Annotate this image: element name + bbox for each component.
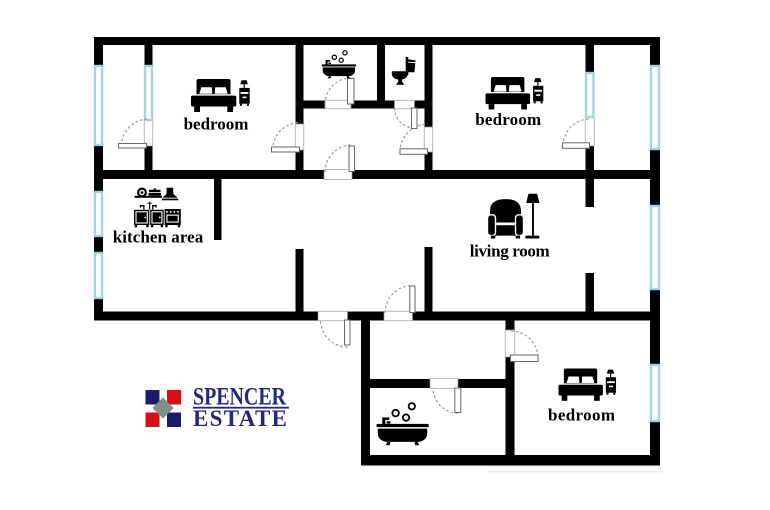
svg-text:bedroom: bedroom — [475, 110, 541, 129]
svg-text:bedroom: bedroom — [548, 405, 615, 424]
svg-text:ESTATE: ESTATE — [193, 406, 287, 431]
svg-text:bedroom: bedroom — [184, 114, 249, 133]
svg-text:living room: living room — [470, 241, 550, 260]
svg-text:kitchen area: kitchen area — [113, 228, 204, 247]
